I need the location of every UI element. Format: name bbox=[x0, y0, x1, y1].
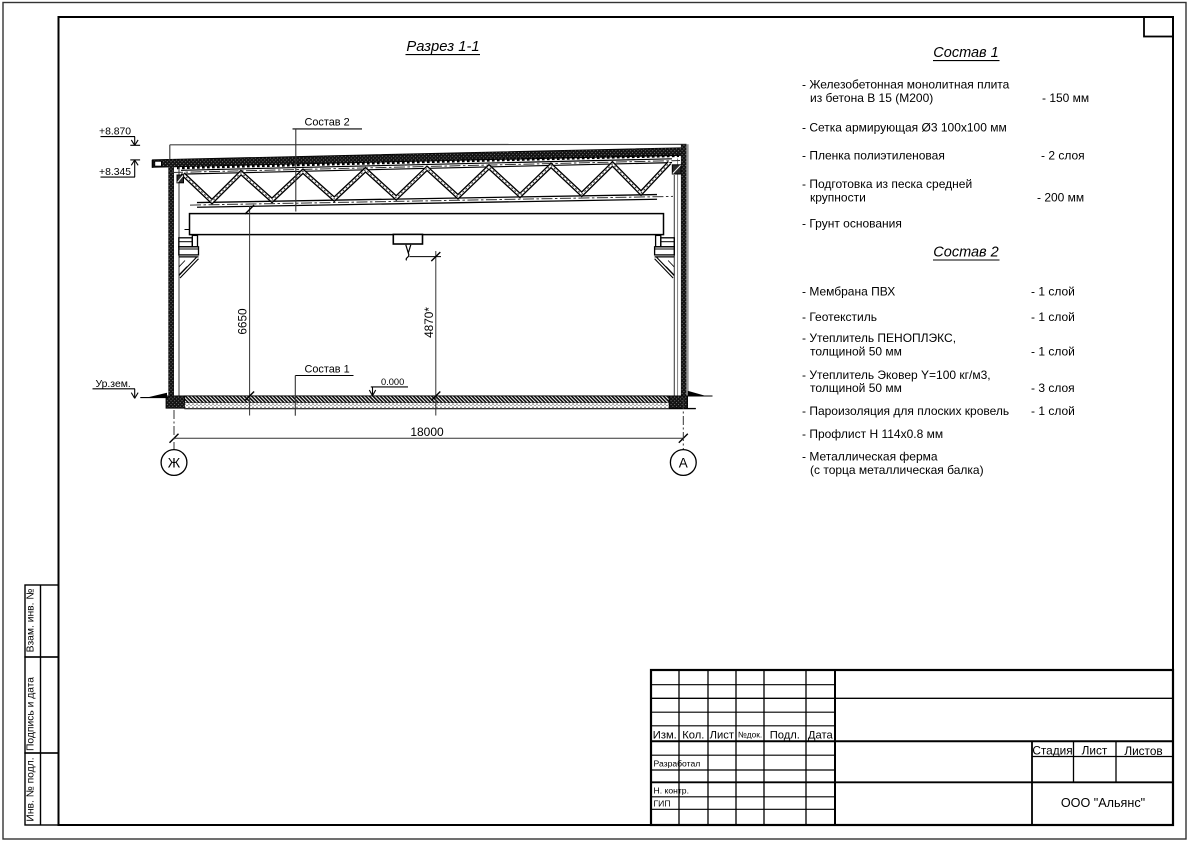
svg-text:(с торца металлическая балка): (с торца металлическая балка) bbox=[810, 463, 984, 477]
svg-text:- Мембрана ПВХ: - Мембрана ПВХ bbox=[802, 285, 895, 299]
svg-text:Кол.: Кол. bbox=[682, 729, 704, 741]
svg-text:- Геотекстиль: - Геотекстиль bbox=[802, 310, 877, 324]
svg-text:Листов: Листов bbox=[1124, 744, 1162, 758]
svg-text:- Утеплитель Эковер Y=100 кг/м: - Утеплитель Эковер Y=100 кг/м3, bbox=[802, 368, 991, 382]
svg-text:Лист: Лист bbox=[710, 729, 734, 741]
svg-text:- Пароизоляция для плоских кро: - Пароизоляция для плоских кровель bbox=[802, 404, 1009, 418]
svg-text:- 3 слоя: - 3 слоя bbox=[1031, 381, 1075, 395]
svg-text:ООО "Альянс": ООО "Альянс" bbox=[1061, 796, 1145, 810]
svg-text:Состав 1: Состав 1 bbox=[933, 45, 998, 61]
svg-text:крупности: крупности bbox=[810, 191, 866, 205]
svg-text:Состав 2: Состав 2 bbox=[933, 245, 998, 261]
svg-text:Изм.: Изм. bbox=[653, 729, 677, 741]
svg-text:Разрез 1-1: Разрез 1-1 bbox=[406, 39, 479, 55]
svg-text:- Профлист Н 114х0.8 мм: - Профлист Н 114х0.8 мм bbox=[802, 427, 943, 441]
svg-text:- 1 слой: - 1 слой bbox=[1031, 285, 1075, 299]
svg-text:- Грунт основания: - Грунт основания bbox=[802, 217, 902, 231]
svg-text:4870*: 4870* bbox=[422, 307, 436, 338]
svg-text:Подл.: Подл. bbox=[770, 729, 800, 741]
svg-text:Инв. № подл.: Инв. № подл. bbox=[26, 757, 37, 821]
svg-text:- Утеплитель ПЕНОПЛЭКС,: - Утеплитель ПЕНОПЛЭКС, bbox=[802, 331, 956, 345]
svg-text:толщиной 50 мм: толщиной 50 мм bbox=[810, 381, 902, 395]
svg-text:из бетона В 15 (М200): из бетона В 15 (М200) bbox=[810, 91, 933, 105]
svg-text:- 2 слоя: - 2 слоя bbox=[1041, 149, 1085, 163]
svg-text:+8.870: +8.870 bbox=[99, 127, 131, 138]
svg-text:- Пленка полиэтиленовая: - Пленка полиэтиленовая bbox=[802, 149, 945, 163]
svg-text:- 200 мм: - 200 мм bbox=[1037, 191, 1084, 205]
svg-text:6650: 6650 bbox=[236, 308, 250, 335]
svg-text:18000: 18000 bbox=[410, 425, 444, 439]
svg-text:Стадия: Стадия bbox=[1032, 743, 1072, 757]
svg-text:№док.: №док. bbox=[738, 729, 762, 739]
svg-text:Н. контр.: Н. контр. bbox=[654, 785, 689, 795]
svg-text:- Сетка армирующая Ø3 100х100: - Сетка армирующая Ø3 100х100 мм bbox=[802, 121, 1007, 135]
svg-text:ГИП: ГИП bbox=[654, 798, 671, 808]
svg-text:Лист: Лист bbox=[1082, 743, 1108, 757]
svg-text:- Железобетонная монолитная п: - Железобетонная монолитная плита bbox=[802, 78, 1010, 92]
svg-text:- 1 слой: - 1 слой bbox=[1031, 404, 1075, 418]
svg-text:- Подготовка из песка средней: - Подготовка из песка средней bbox=[802, 177, 972, 191]
svg-text:Разработал: Разработал bbox=[654, 759, 701, 769]
svg-text:- 150 мм: - 150 мм bbox=[1042, 91, 1089, 105]
svg-text:Взам. инв. №: Взам. инв. № bbox=[26, 589, 37, 653]
svg-text:- 1 слой: - 1 слой bbox=[1031, 345, 1075, 359]
svg-text:Состав 1: Состав 1 bbox=[305, 364, 350, 376]
svg-text:Ж: Ж bbox=[168, 456, 181, 471]
svg-text:А: А bbox=[679, 456, 688, 471]
svg-text:Подпись и дата: Подпись и дата bbox=[26, 677, 37, 751]
svg-text:- Металлическая ферма: - Металлическая ферма bbox=[802, 450, 938, 464]
svg-text:Дата: Дата bbox=[808, 729, 834, 741]
svg-text:Состав 2: Состав 2 bbox=[305, 117, 350, 129]
svg-text:0.000: 0.000 bbox=[381, 377, 404, 387]
svg-text:- 1 слой: - 1 слой bbox=[1031, 310, 1075, 324]
svg-text:толщиной 50 мм: толщиной 50 мм bbox=[810, 345, 902, 359]
